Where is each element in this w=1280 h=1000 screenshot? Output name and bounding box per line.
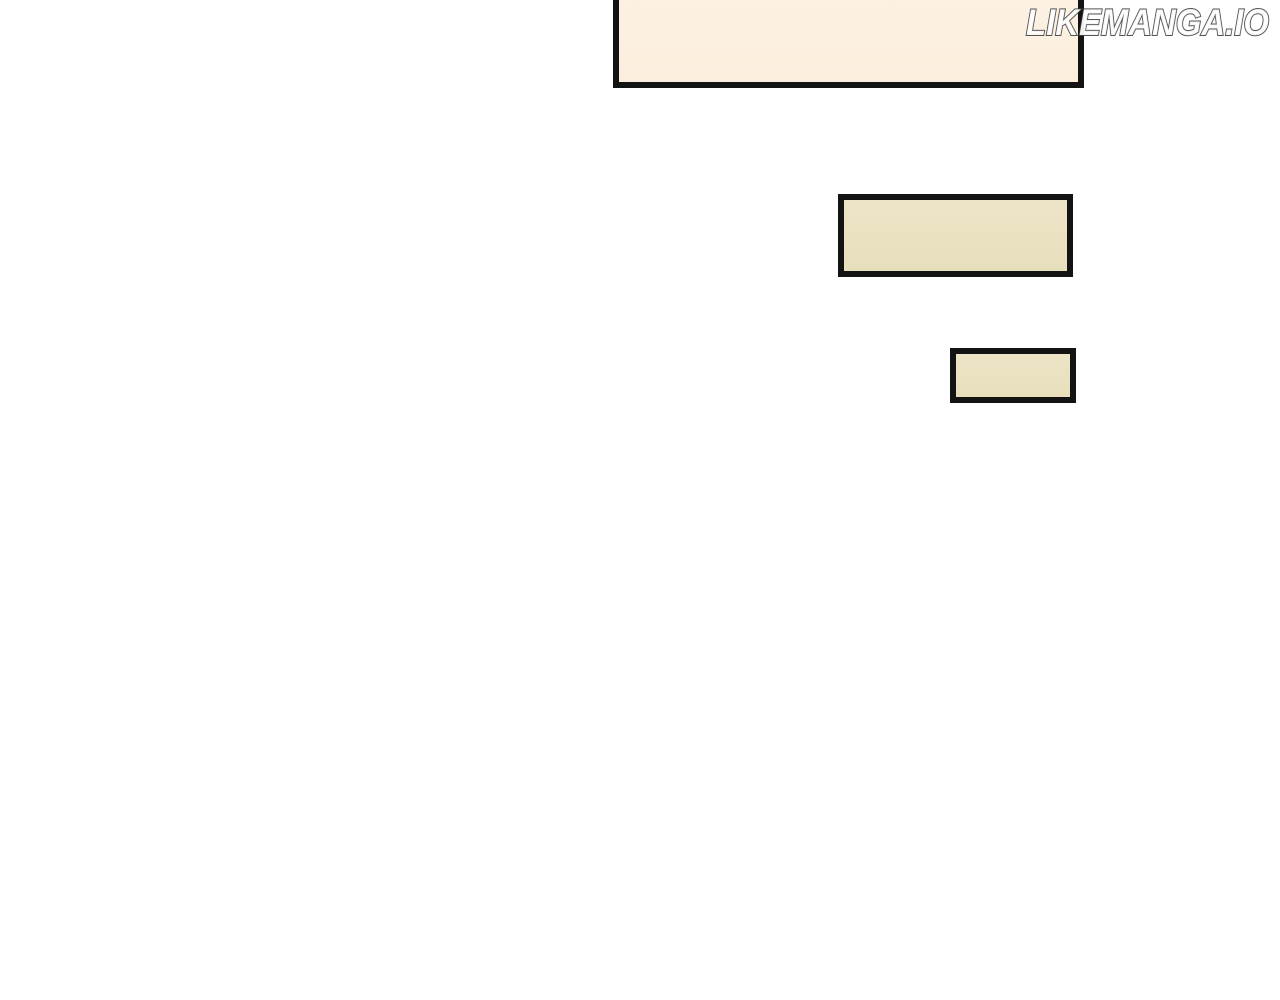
svg-text:LIKEMANGA.IO: LIKEMANGA.IO xyxy=(1026,2,1269,43)
